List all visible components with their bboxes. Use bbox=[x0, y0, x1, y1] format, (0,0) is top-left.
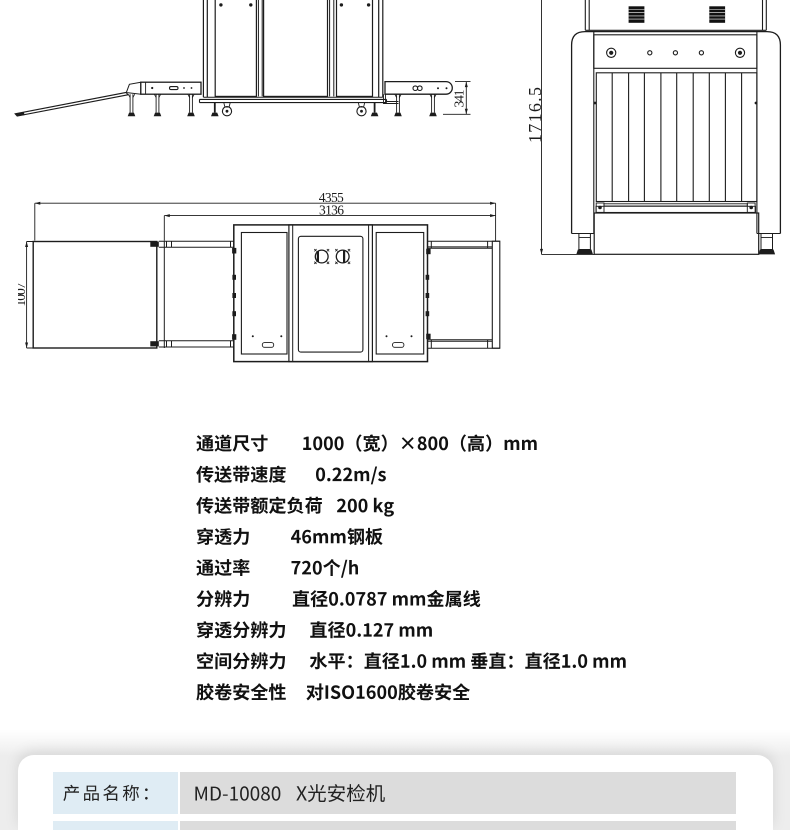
svg-text:1716.5: 1716.5 bbox=[525, 87, 545, 143]
svg-text:341: 341 bbox=[452, 90, 467, 108]
svg-text:3136: 3136 bbox=[319, 202, 344, 217]
svg-text:1007: 1007 bbox=[18, 282, 28, 306]
